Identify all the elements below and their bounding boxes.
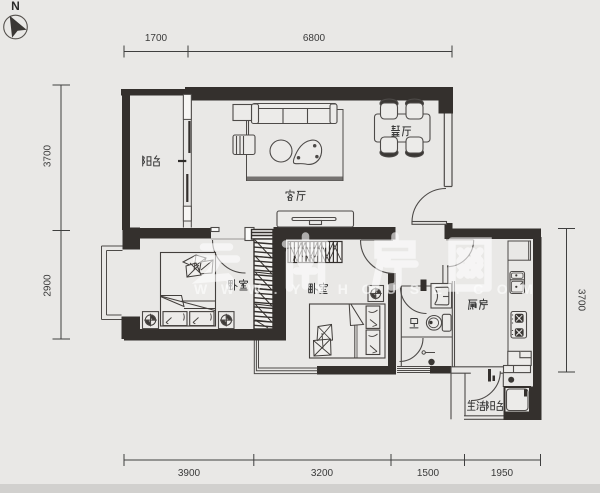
svg-text:1700: 1700 [145,33,168,44]
svg-text:2900: 2900 [43,274,54,297]
svg-text:WWW.YNHOUSE.COM: WWW.YNHOUSE.COM [194,281,547,297]
svg-text:3200: 3200 [311,468,334,479]
svg-text:3700: 3700 [576,289,587,312]
svg-text:N: N [11,0,20,13]
svg-text:3900: 3900 [178,468,201,479]
svg-text:1500: 1500 [417,468,440,479]
svg-text:3700: 3700 [43,144,54,167]
svg-text:1950: 1950 [491,468,514,479]
svg-text:6800: 6800 [303,33,326,44]
